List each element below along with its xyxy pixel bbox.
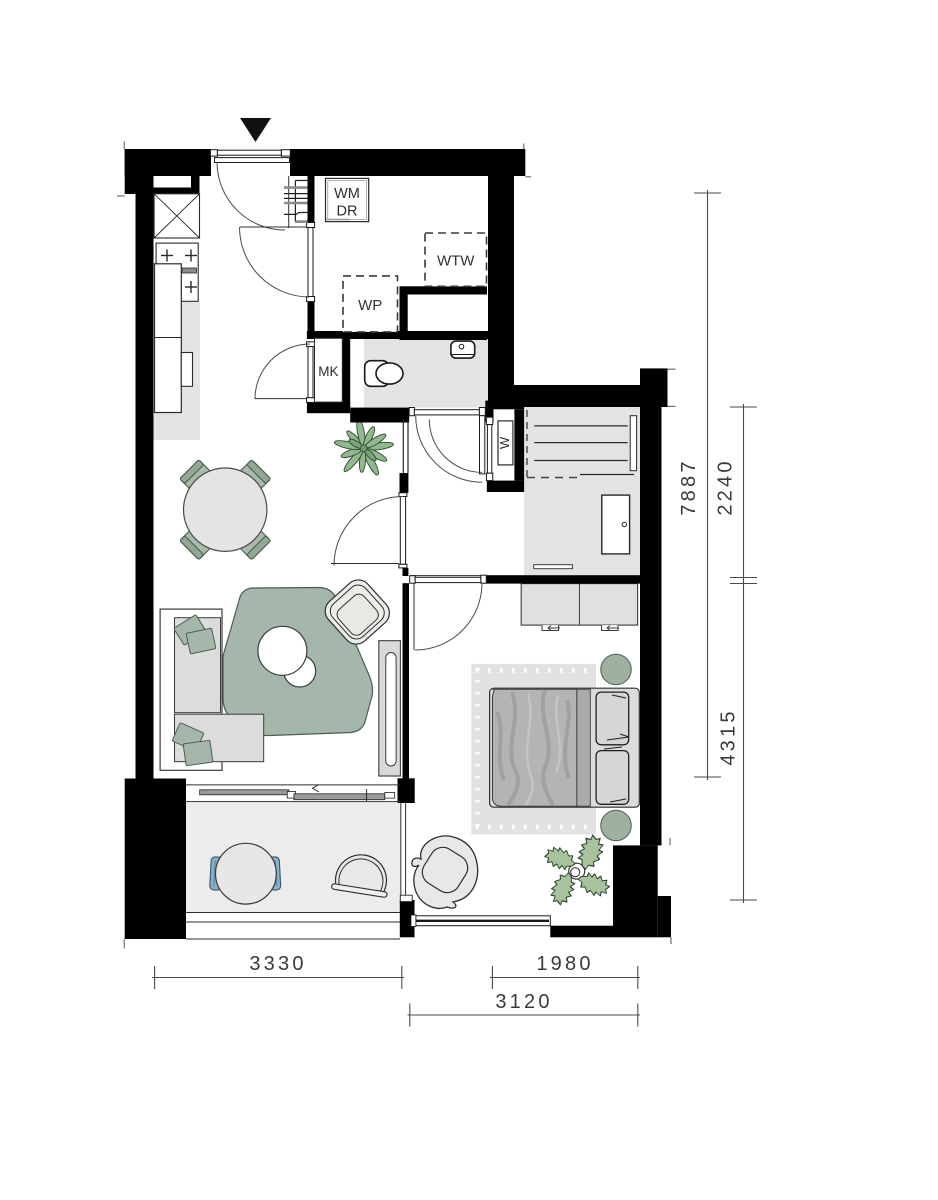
svg-text:WTW: WTW	[437, 253, 475, 270]
svg-text:3330: 3330	[249, 953, 306, 975]
svg-text:4315: 4315	[718, 708, 740, 765]
svg-text:WM: WM	[334, 186, 360, 202]
svg-text:1980: 1980	[536, 953, 593, 975]
svg-text:W: W	[497, 436, 512, 449]
svg-text:WP: WP	[358, 297, 382, 314]
svg-text:2240: 2240	[715, 458, 737, 515]
svg-text:7887: 7887	[678, 458, 700, 515]
svg-text:DR: DR	[337, 204, 358, 220]
svg-text:MK: MK	[318, 364, 338, 379]
svg-text:3120: 3120	[495, 991, 552, 1013]
